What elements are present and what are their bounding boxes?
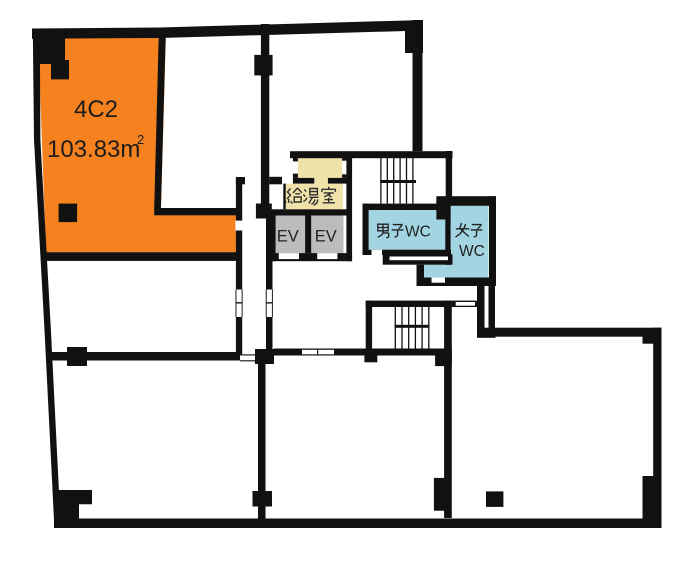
svg-text:2: 2 — [137, 132, 144, 147]
svg-text:103.83m: 103.83m — [47, 136, 140, 163]
svg-text:EV: EV — [315, 228, 337, 246]
svg-text:WC: WC — [459, 243, 485, 260]
svg-text:WC: WC — [405, 224, 431, 241]
svg-text:4C2: 4C2 — [74, 96, 118, 123]
svg-text:EV: EV — [277, 228, 299, 246]
